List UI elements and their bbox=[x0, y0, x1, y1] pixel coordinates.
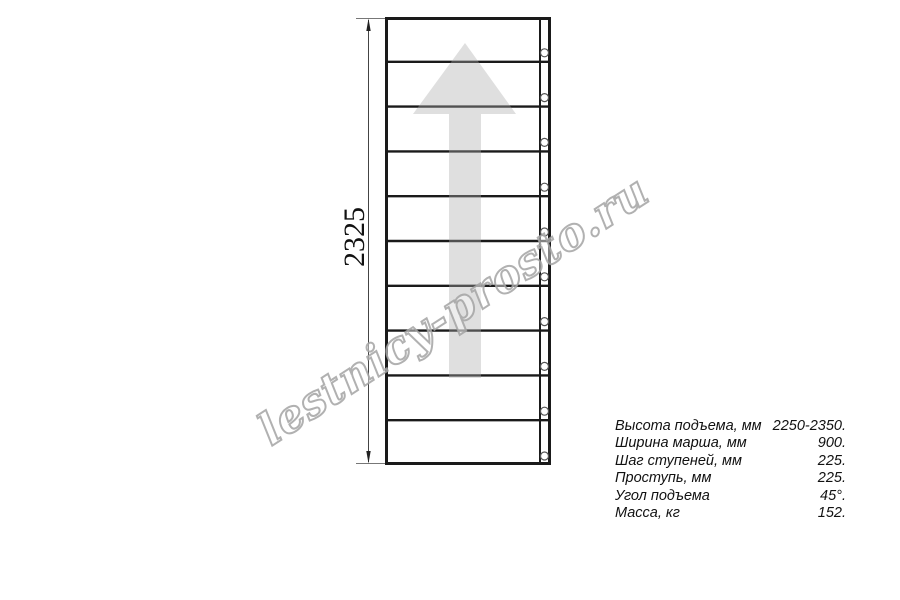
spec-label: Проступь, мм bbox=[615, 470, 711, 487]
spec-row: Ширина марша, мм 900. bbox=[615, 435, 846, 452]
bolt-hole-icon bbox=[541, 49, 549, 57]
spec-value: 225. bbox=[818, 453, 846, 470]
bolt-hole-icon bbox=[541, 228, 549, 236]
spec-value: 45°. bbox=[820, 488, 846, 505]
dimension-label: 2325 bbox=[338, 207, 371, 267]
spec-table: Высота подъема, мм 2250-2350. Ширина мар… bbox=[615, 418, 846, 522]
bolt-hole-icon bbox=[541, 138, 549, 146]
spec-label: Шаг ступеней, мм bbox=[615, 453, 742, 470]
bolt-hole-icon bbox=[541, 362, 549, 370]
spec-row: Угол подъема 45°. bbox=[615, 488, 846, 505]
direction-up-arrow-icon bbox=[413, 43, 516, 378]
spec-label: Масса, кг bbox=[615, 505, 680, 522]
spec-row: Проступь, мм 225. bbox=[615, 470, 846, 487]
bolt-hole-icon bbox=[541, 94, 549, 102]
dimension-arrowhead-down-icon bbox=[366, 451, 370, 464]
bolt-hole-icon bbox=[541, 407, 549, 415]
drawing-canvas: 2325 lestnicy-prosto.ru Высота подъема, … bbox=[0, 0, 900, 600]
bolt-hole-icon bbox=[541, 273, 549, 281]
spec-label: Высота подъема, мм bbox=[615, 418, 762, 435]
spec-label: Ширина марша, мм bbox=[615, 435, 747, 452]
dimension-arrowhead-up-icon bbox=[366, 19, 370, 32]
bolt-hole-icon bbox=[541, 183, 549, 191]
spec-value: 900. bbox=[818, 435, 846, 452]
spec-value: 225. bbox=[818, 470, 846, 487]
spec-label: Угол подъема bbox=[615, 488, 710, 505]
bolt-hole-icon bbox=[541, 452, 549, 460]
bolt-holes bbox=[541, 49, 549, 460]
spec-value: 2250-2350. bbox=[773, 418, 846, 435]
spec-row: Масса, кг 152. bbox=[615, 505, 846, 522]
spec-row: Высота подъема, мм 2250-2350. bbox=[615, 418, 846, 435]
spec-value: 152. bbox=[818, 505, 846, 522]
bolt-hole-icon bbox=[541, 318, 549, 326]
spec-row: Шаг ступеней, мм 225. bbox=[615, 453, 846, 470]
